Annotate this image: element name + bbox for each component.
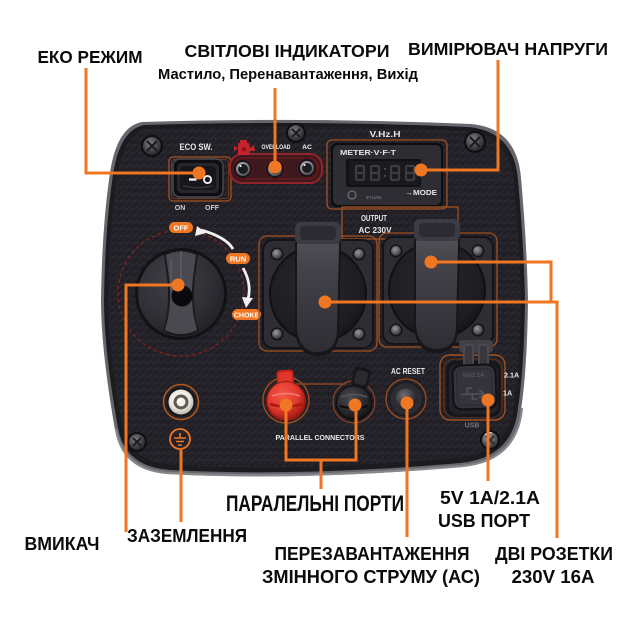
svg-text:AC RESET: AC RESET xyxy=(391,366,426,376)
svg-text:ЗАЗЕМЛЕННЯ: ЗАЗЕМЛЕННЯ xyxy=(127,526,247,546)
svg-text:Мастило, Перенавантаження, Вих: Мастило, Перенавантаження, Вихід xyxy=(158,67,418,83)
svg-text:METER·V·F·T: METER·V·F·T xyxy=(340,150,397,157)
svg-text:СВІТЛОВІ ІНДИКАТОРИ: СВІТЛОВІ ІНДИКАТОРИ xyxy=(185,41,390,61)
svg-text:→MODE: →MODE xyxy=(405,188,437,197)
svg-text:1A: 1A xyxy=(503,389,512,398)
svg-text:RUN: RUN xyxy=(230,255,246,264)
svg-text:USB: USB xyxy=(465,423,480,430)
svg-text:ЗМІННОГО СТРУМУ (АС): ЗМІННОГО СТРУМУ (АС) xyxy=(262,566,480,587)
svg-text:ВИМІРЮВАЧ НАПРУГИ: ВИМІРЮВАЧ НАПРУГИ xyxy=(408,39,608,59)
svg-text:ZYUAN: ZYUAN xyxy=(366,195,381,200)
svg-text:ON: ON xyxy=(175,205,186,212)
svg-text:AC: AC xyxy=(302,144,312,151)
svg-text:ВМИКАЧ: ВМИКАЧ xyxy=(25,534,100,554)
svg-text:CHOKE: CHOKE xyxy=(234,313,260,320)
svg-text:ECO SW.: ECO SW. xyxy=(180,142,213,152)
svg-text:ЕКО РЕЖИМ: ЕКО РЕЖИМ xyxy=(38,47,143,67)
svg-text:V.Hz.H: V.Hz.H xyxy=(370,129,401,139)
svg-text:2.1A: 2.1A xyxy=(504,371,519,380)
svg-text:5V/2.1A: 5V/2.1A xyxy=(463,373,486,380)
svg-text:ПЕРЕЗАВАНТАЖЕННЯ: ПЕРЕЗАВАНТАЖЕННЯ xyxy=(275,543,470,564)
svg-text:USB ПОРТ: USB ПОРТ xyxy=(438,511,530,531)
svg-text:OFF: OFF xyxy=(174,224,189,233)
svg-text:230V 16A: 230V 16A xyxy=(512,567,595,587)
svg-text:OFF: OFF xyxy=(205,205,220,212)
svg-text:PARALLEL CONNECTORS: PARALLEL CONNECTORS xyxy=(276,433,365,442)
svg-text:ПАРАЛЕЛЬНІ ПОРТИ: ПАРАЛЕЛЬНІ ПОРТИ xyxy=(226,491,404,516)
svg-text:5V 1A/2.1A: 5V 1A/2.1A xyxy=(440,488,540,508)
svg-text:ДВІ РОЗЕТКИ: ДВІ РОЗЕТКИ xyxy=(495,544,613,564)
svg-text:OUTPUT: OUTPUT xyxy=(361,213,388,223)
